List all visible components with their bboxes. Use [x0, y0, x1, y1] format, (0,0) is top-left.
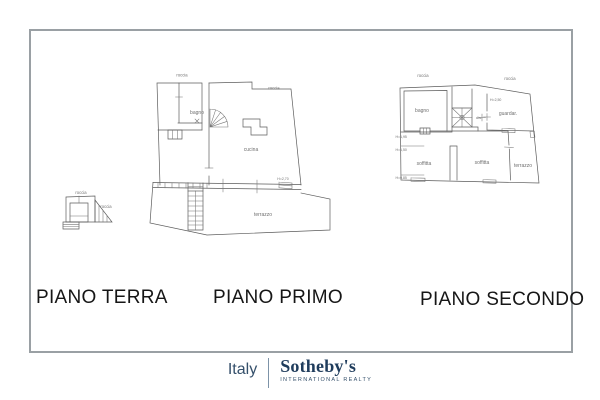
room-label-bagno: bagno [190, 110, 204, 116]
plan-drawing-piano-primo: roccia roccia bagno cucina H=2,70 terraz… [148, 64, 335, 240]
height-label-mid: H=1,50 [396, 148, 407, 152]
height-label-lower: H=0,85 [396, 176, 407, 180]
height-label-guardaroba: H=2,50 [490, 98, 501, 102]
brand-name: Sotheby's [280, 356, 356, 376]
piano-terra-walls [63, 196, 112, 229]
site-label-roccia: roccia [100, 204, 112, 209]
site-label-roccia: roccia [268, 86, 280, 91]
plan-drawing-piano-secondo: roccia roccia bagno dis. guardar. H=2,50… [390, 64, 550, 205]
room-label-soffitta-center: soffitta [475, 160, 490, 166]
brand-country: Italy [228, 356, 257, 379]
room-label-bagno: bagno [415, 108, 429, 114]
site-label-roccia: roccia [504, 76, 516, 81]
brand-footer: Italy Sotheby's INTERNATIONAL REALTY [0, 356, 600, 388]
brand-tagline: INTERNATIONAL REALTY [280, 377, 372, 383]
plan-drawing-piano-terra: roccia roccia [55, 183, 125, 235]
floor-title-piano-terra: PIANO TERRA [36, 287, 168, 309]
room-label-cucina: cucina [244, 147, 259, 153]
floor-title-piano-secondo: PIANO SECONDO [420, 289, 584, 311]
room-label-dis: dis. [476, 115, 482, 120]
brand-divider [268, 358, 269, 388]
floorplan-sheet: roccia roccia [0, 0, 600, 400]
room-label-terrazzo: terrazzo [254, 212, 272, 218]
room-label-guardaroba: guardar. [499, 111, 517, 117]
site-label-roccia: roccia [417, 73, 429, 78]
height-label-upper: H=1,95 [396, 135, 407, 139]
room-label-terrazzo: terrazzo [514, 163, 532, 169]
site-label-roccia: roccia [75, 190, 87, 195]
site-label-roccia: roccia [176, 73, 188, 78]
floor-title-piano-primo: PIANO PRIMO [213, 287, 343, 309]
height-label-cucina: H=2,70 [277, 177, 288, 181]
brand-block: Sotheby's INTERNATIONAL REALTY [280, 356, 372, 383]
piano-primo-walls [150, 82, 330, 235]
room-label-soffitta-left: soffitta [417, 161, 432, 167]
